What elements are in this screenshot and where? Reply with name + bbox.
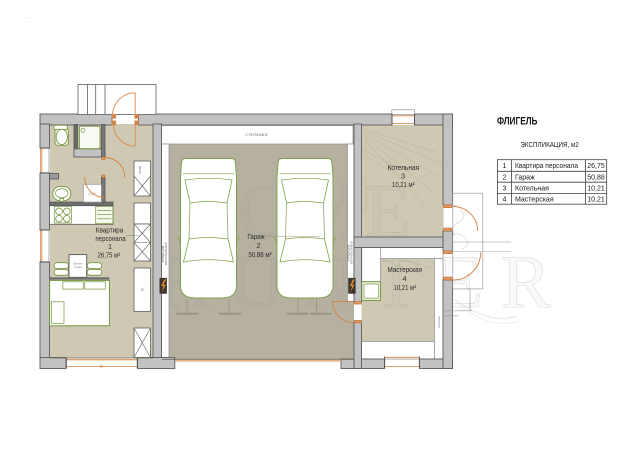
svg-text:Гараж: Гараж xyxy=(515,175,535,182)
svg-text:Счетчик: Счетчик xyxy=(437,316,441,328)
svg-text:3: 3 xyxy=(401,171,405,180)
svg-text:Мастерская: Мастерская xyxy=(515,197,554,204)
svg-text:ЭЛЕКТРОМОБИЛЕЙ: ЭЛЕКТРОМОБИЛЕЙ xyxy=(351,241,354,264)
svg-text:50,88 м²: 50,88 м² xyxy=(248,250,272,259)
svg-text:4: 4 xyxy=(503,197,507,204)
svg-text:3: 3 xyxy=(503,186,507,193)
svg-text:26,75: 26,75 xyxy=(587,163,605,170)
svg-text:СТЕЛЛАЖИ: СТЕЛЛАЖИ xyxy=(245,133,267,137)
svg-text:ФЛИГЕЛЬ: ФЛИГЕЛЬ xyxy=(497,115,538,127)
svg-text:тв: тв xyxy=(141,288,145,291)
svg-text:стойка: стойка xyxy=(74,265,83,269)
svg-text:50,88: 50,88 xyxy=(587,175,605,182)
svg-text:26,75 м²: 26,75 м² xyxy=(98,250,121,259)
svg-text:10,21: 10,21 xyxy=(587,197,605,204)
svg-text:ЭЛЕКТРОМОБИЛЕЙ: ЭЛЕКТРОМОБИЛЕЙ xyxy=(165,242,168,265)
svg-text:Котельная: Котельная xyxy=(515,186,549,193)
svg-text:10,21 м²: 10,21 м² xyxy=(392,180,415,189)
svg-text:4: 4 xyxy=(403,274,407,283)
svg-text:10,21 м²: 10,21 м² xyxy=(394,283,417,292)
svg-text:2: 2 xyxy=(503,175,507,182)
svg-text:10,21: 10,21 xyxy=(587,186,605,193)
svg-text:1: 1 xyxy=(503,163,507,170)
svg-text:Гараж: Гараж xyxy=(247,232,264,241)
svg-text:шкаф: шкаф xyxy=(138,166,142,174)
svg-text:ЭКСПЛИКАЦИЯ, м2: ЭКСПЛИКАЦИЯ, м2 xyxy=(520,142,578,149)
svg-text:Квартира персонала: Квартира персонала xyxy=(515,163,578,170)
svg-text:2: 2 xyxy=(257,241,261,250)
svg-text:Мастерская: Мастерская xyxy=(388,265,423,274)
